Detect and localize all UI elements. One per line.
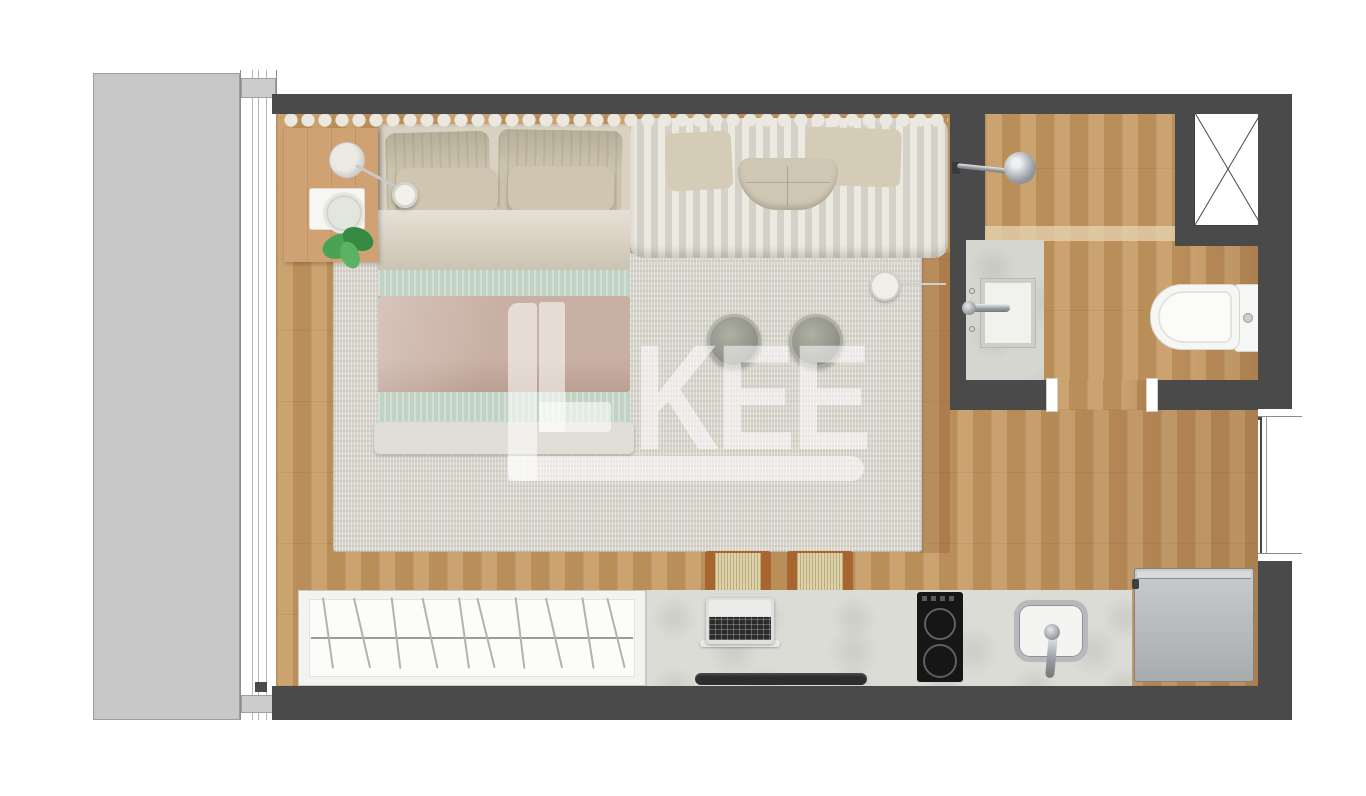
laptop-screen (709, 600, 771, 616)
shaft-x-icon (1195, 113, 1261, 225)
sofa-pillow (665, 130, 734, 191)
window-sill (1258, 553, 1302, 561)
table-lamp (329, 142, 365, 178)
side-table-arm (898, 283, 946, 285)
door-jamb (1146, 378, 1158, 412)
vanity-basin-inner (985, 283, 1031, 343)
sofa-seat-cushion (738, 158, 838, 210)
duct-shaft (1194, 112, 1262, 226)
cushion-seam (787, 166, 788, 206)
monstera-plant (320, 224, 380, 270)
sliding-window-track (240, 70, 277, 720)
burner (924, 608, 956, 640)
track-head-block (241, 78, 276, 98)
daybed-sofa (630, 118, 948, 258)
sink-faucet-base (1044, 624, 1060, 640)
bed-sheet-fold (378, 210, 630, 270)
laptop-keyboard (709, 617, 771, 640)
hanging-rail (311, 637, 633, 639)
bed-footboard-bench (374, 422, 634, 454)
bathroom-bottom-wall (950, 380, 1052, 410)
shower-head (1004, 152, 1036, 184)
cushion-seam (746, 182, 830, 183)
bench-rail (695, 673, 867, 685)
right-wall-upper (1258, 94, 1292, 420)
cooktop (917, 592, 963, 682)
fridge-top-bar (1137, 571, 1251, 579)
track-stop-block (255, 682, 267, 692)
side-table (870, 271, 900, 301)
double-bed (378, 124, 630, 454)
reading-lamp (392, 182, 418, 208)
hot-cold-marker (969, 326, 975, 332)
bathroom-bottom-wall (1152, 380, 1258, 410)
bottom-wall (272, 686, 1292, 720)
track-line (266, 70, 267, 720)
burner (923, 644, 957, 678)
vanity-basin (980, 278, 1036, 348)
laptop (706, 598, 774, 644)
mint-blanket-stripe (378, 270, 630, 296)
door-opening-floor (1052, 380, 1152, 410)
mint-blanket-stripe (378, 392, 630, 422)
pillow (508, 166, 614, 212)
dark-plank-strip (920, 253, 950, 553)
track-line (258, 70, 259, 720)
flush-button (1243, 313, 1253, 323)
shower-threshold (985, 226, 1177, 241)
right-window (1260, 416, 1294, 560)
pink-blanket (378, 296, 630, 392)
balcony-area (93, 73, 240, 720)
window-frame-line (1266, 416, 1267, 560)
vanity-faucet-knob (962, 301, 976, 315)
floorplan-canvas: KEE (0, 0, 1366, 796)
window-sill (1258, 409, 1302, 417)
cooktop-controls (922, 596, 958, 601)
vanity (966, 240, 1044, 380)
pouf (707, 314, 761, 368)
track-line (252, 70, 253, 720)
track-sill-block (241, 695, 276, 713)
fridge-hinge (1132, 579, 1139, 589)
refrigerator (1134, 568, 1254, 682)
toilet (1150, 282, 1262, 354)
hot-cold-marker (969, 288, 975, 294)
wardrobe (298, 590, 646, 686)
top-wall (272, 94, 1292, 114)
toilet-seat (1158, 291, 1232, 343)
pouf (789, 314, 843, 368)
door-jamb (1046, 378, 1058, 412)
toilet-bowl (1150, 284, 1240, 350)
